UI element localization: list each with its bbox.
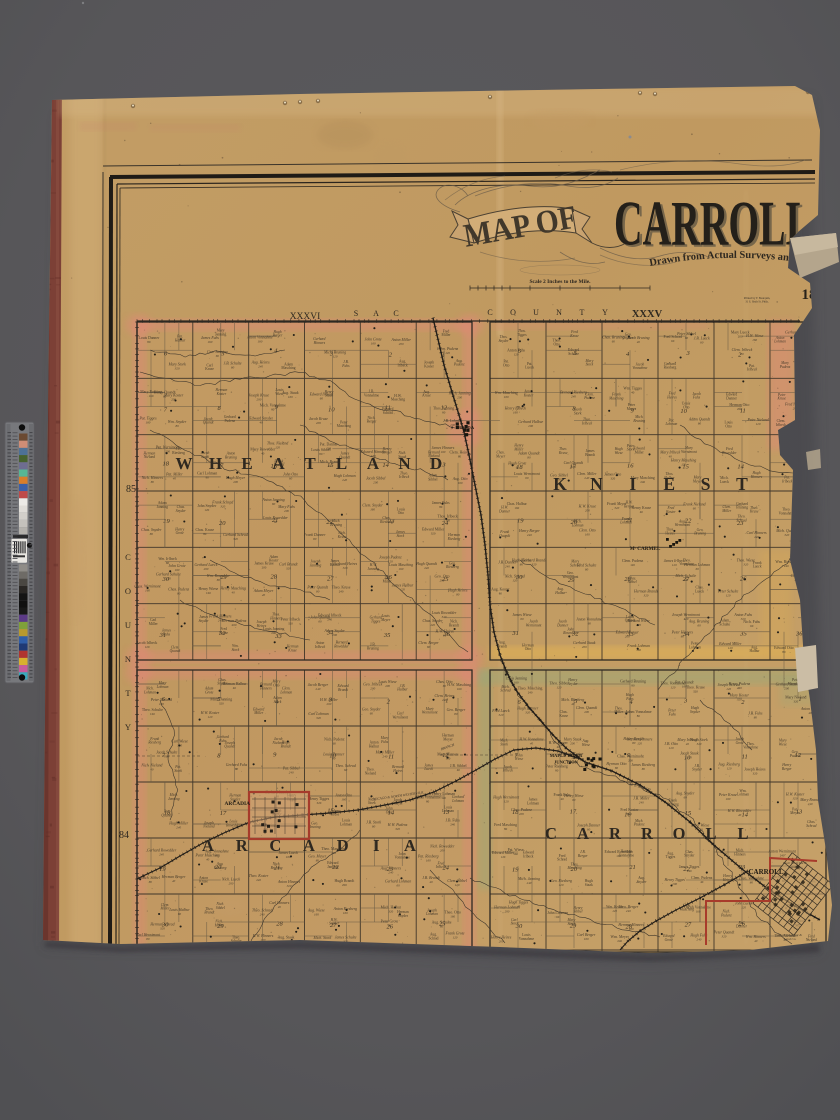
svg-text:240: 240 [289,771,294,775]
svg-text:S: S [354,309,358,318]
svg-text:40: 40 [150,768,154,772]
svg-text:Snyder: Snyder [499,339,510,343]
svg-text:200: 200 [370,687,375,691]
svg-text:Brandt: Brandt [449,623,459,627]
svg-text:200: 200 [284,509,289,513]
svg-text:H: H [209,454,222,473]
svg-text:Kruse: Kruse [205,367,214,371]
svg-text:3: 3 [685,350,690,357]
svg-text:60: 60 [520,617,524,621]
svg-text:40: 40 [686,742,690,746]
svg-text:Snyder: Snyder [199,619,210,623]
svg-text:XXXV: XXXV [632,309,663,320]
svg-text:Janning: Janning [310,564,322,568]
svg-text:Wernimont: Wernimont [681,450,698,454]
svg-text:Riesberg: Riesberg [147,741,161,745]
svg-text:60: 60 [318,620,322,624]
svg-text:60: 60 [328,464,332,468]
svg-text:320: 320 [219,702,224,706]
svg-text:160: 160 [616,854,621,858]
svg-text:160: 160 [726,797,731,801]
svg-text:320: 320 [442,615,447,619]
svg-text:Otto: Otto [554,343,561,347]
svg-text:200: 200 [628,759,633,763]
svg-text:Lueck: Lueck [525,366,534,370]
svg-text:320: 320 [343,566,348,570]
svg-text:240: 240 [640,480,645,484]
svg-text:Miller: Miller [253,711,264,715]
svg-text:320: 320 [793,797,798,801]
svg-text:T: T [580,308,585,317]
svg-text:Scale 2 Inches to the Mile.: Scale 2 Inches to the Mile. [529,279,591,285]
svg-text:Miller: Miller [442,333,452,337]
svg-text:Otto: Otto [525,647,532,651]
svg-text:Quandt: Quandt [224,745,236,749]
svg-text:Bruning: Bruning [271,866,283,870]
svg-text:14: 14 [737,464,744,471]
svg-text:Lueck: Lueck [695,589,704,593]
svg-text:Irlbeck: Irlbeck [314,645,326,649]
svg-text:80: 80 [231,365,235,369]
svg-text:200: 200 [332,633,337,637]
svg-text:Pudenz: Pudenz [720,914,732,918]
svg-text:160: 160 [232,623,237,627]
svg-text:60: 60 [274,520,278,524]
svg-text:40: 40 [278,905,282,909]
svg-text:Danner: Danner [735,925,748,929]
svg-text:160: 160 [571,465,576,469]
svg-text:80: 80 [637,714,641,718]
svg-text:Heires: Heires [392,769,403,773]
svg-text:Grote: Grote [176,531,185,535]
svg-text:80: 80 [146,937,150,941]
svg-text:Halbur: Halbur [396,688,408,692]
svg-text:200: 200 [528,424,533,428]
svg-text:N: N [125,654,131,664]
svg-text:S: S [701,474,711,494]
svg-text:Lueck: Lueck [423,767,433,771]
svg-text:60: 60 [289,477,293,481]
svg-text:Brandt: Brandt [204,911,215,915]
svg-text:160: 160 [696,910,701,914]
svg-text:Land Co.: Land Co. [783,937,797,941]
svg-text:Sibbel: Sibbel [628,580,637,584]
svg-text:Quandt: Quandt [625,619,636,623]
svg-text:80: 80 [178,912,182,916]
svg-text:Tigges: Tigges [666,855,676,859]
svg-text:60: 60 [693,506,697,510]
svg-text:320: 320 [610,477,615,481]
svg-text:160: 160 [149,394,154,398]
svg-text:160: 160 [371,342,376,346]
svg-text:Stork: Stork [574,411,582,415]
svg-text:Y: Y [125,722,131,732]
svg-text:160: 160 [146,421,151,425]
svg-text:Stork: Stork [586,363,594,367]
svg-text:200: 200 [450,423,455,427]
svg-text:320: 320 [697,742,702,746]
svg-text:C: C [269,836,281,855]
svg-text:80: 80 [754,715,758,719]
svg-text:Bruning: Bruning [309,825,321,829]
svg-text:A: A [202,836,214,855]
svg-text:320: 320 [741,617,746,621]
svg-text:120: 120 [559,883,564,887]
svg-text:Schrad: Schrad [557,858,567,862]
svg-text:Snyder: Snyder [176,509,187,513]
svg-text:Quandt: Quandt [203,421,215,425]
svg-text:Bruning: Bruning [330,523,342,527]
svg-text:Bruning: Bruning [633,419,645,423]
svg-text:Halbur: Halbur [369,744,380,748]
svg-text:320: 320 [793,700,798,704]
svg-text:120: 120 [453,936,458,940]
svg-text:200: 200 [233,480,238,484]
svg-text:60: 60 [684,796,688,800]
svg-text:Berger: Berger [367,420,378,424]
svg-text:E: E [241,454,252,473]
svg-text:Bruning: Bruning [367,646,379,650]
svg-text:200: 200 [784,687,789,691]
svg-text:200: 200 [582,645,587,649]
svg-text:200: 200 [262,566,267,570]
svg-text:120: 120 [726,687,731,691]
svg-text:Nieland: Nieland [272,741,285,745]
svg-text:Otto: Otto [398,511,405,515]
svg-text:Tigges: Tigges [517,333,527,337]
svg-text:120: 120 [728,646,733,650]
svg-text:80: 80 [150,532,154,536]
svg-text:Grote: Grote [736,741,745,745]
svg-text:120: 120 [504,799,509,803]
svg-text:80: 80 [443,634,447,638]
svg-text:Heires: Heires [666,395,677,399]
svg-text:80: 80 [631,684,635,688]
svg-text:Meyer: Meyer [495,454,506,458]
svg-text:160: 160 [258,340,263,344]
svg-text:320: 320 [753,772,758,776]
svg-text:Masching: Masching [337,424,351,428]
svg-text:Grote: Grote [665,938,674,942]
svg-text:Stork: Stork [397,534,405,538]
svg-text:80: 80 [176,424,180,428]
svg-text:O: O [673,824,686,843]
svg-text:160: 160 [752,338,757,342]
svg-text:Kruse: Kruse [558,451,568,455]
svg-text:Fuhs: Fuhs [692,396,701,400]
svg-text:O: O [125,586,131,596]
svg-text:Heires: Heires [665,531,675,535]
svg-text:200: 200 [327,702,332,706]
svg-text:320: 320 [233,537,238,541]
svg-text:80: 80 [147,340,151,344]
svg-text:Janning: Janning [157,505,168,509]
svg-text:160: 160 [457,687,462,691]
svg-text:Otto: Otto [725,424,732,428]
svg-text:Koster: Koster [216,392,227,396]
svg-text:40: 40 [530,741,534,745]
svg-text:BREDA: BREDA [458,425,475,430]
svg-text:85: 85 [126,484,136,495]
svg-text:120: 120 [512,579,517,583]
svg-text:160: 160 [399,567,404,571]
svg-text:Wiese: Wiese [779,742,788,746]
svg-text:Meyer: Meyer [790,811,800,815]
svg-text:160: 160 [288,395,293,399]
svg-text:120: 120 [630,563,635,567]
svg-text:240: 240 [584,476,589,480]
svg-text:240: 240 [571,395,576,399]
svg-text:60: 60 [525,476,529,480]
svg-text:Nieland: Nieland [143,455,156,459]
svg-text:160: 160 [458,481,463,485]
svg-text:200: 200 [342,883,347,887]
svg-text:Masching: Masching [281,366,295,370]
svg-text:320: 320 [644,593,649,597]
svg-text:80: 80 [782,650,786,654]
svg-text:Pudenz: Pudenz [583,396,595,400]
svg-text:Koster: Koster [523,394,534,398]
svg-text:ARCADIA: ARCADIA [225,801,251,807]
svg-text:Rowedder: Rowedder [562,631,578,635]
svg-text:80: 80 [504,827,508,831]
svg-text:60: 60 [698,624,702,628]
svg-text:R: R [609,824,622,843]
svg-text:160: 160 [504,395,509,399]
svg-text:Irlbeck: Irlbeck [581,421,593,425]
svg-text:80: 80 [456,592,460,596]
svg-text:R: R [641,824,654,843]
svg-text:160: 160 [513,411,518,415]
svg-text:Irlbeck: Irlbeck [746,368,758,372]
svg-text:120: 120 [204,508,209,512]
svg-text:240: 240 [808,802,813,806]
svg-text:240: 240 [388,871,393,875]
svg-text:160: 160 [584,937,589,941]
svg-text:Wiese: Wiese [615,451,624,455]
svg-text:A: A [303,836,315,855]
svg-text:Halbur: Halbur [750,649,761,653]
svg-text:200: 200 [499,939,504,943]
svg-text:320: 320 [737,697,742,701]
svg-text:240: 240 [754,535,759,539]
svg-text:Stork: Stork [568,922,576,926]
svg-text:120: 120 [430,623,435,627]
svg-text:120: 120 [669,746,674,750]
svg-text:Sibbel: Sibbel [574,910,583,914]
svg-text:80: 80 [442,411,446,415]
svg-text:Bruning: Bruning [736,506,748,510]
svg-text:N: N [398,454,411,473]
svg-text:240: 240 [383,754,388,758]
svg-text:60: 60 [344,768,348,772]
svg-text:80: 80 [632,741,636,745]
svg-text:Lohman: Lohman [279,691,292,695]
svg-text:320: 320 [614,506,619,510]
svg-text:80: 80 [372,825,376,829]
svg-text:Kruse: Kruse [219,631,228,635]
svg-text:A: A [577,824,589,843]
svg-text:31 S. Sixth St. Phila.: 31 S. Sixth St. Phila. [745,301,769,304]
svg-text:40: 40 [173,477,177,481]
svg-text:Rowedder: Rowedder [333,644,349,648]
svg-text:N: N [590,474,603,494]
svg-text:80: 80 [685,336,689,340]
svg-text:80: 80 [750,880,754,884]
svg-text:Stork: Stork [627,448,635,452]
svg-text:160: 160 [164,755,169,759]
svg-text:320: 320 [288,621,293,625]
svg-text:40: 40 [640,510,644,514]
svg-text:120: 120 [166,576,171,580]
svg-text:Berger: Berger [578,854,588,858]
svg-text:80: 80 [332,756,336,760]
svg-text:80: 80 [740,352,744,356]
svg-text:O: O [510,308,516,317]
svg-text:Schrad: Schrad [806,824,816,828]
svg-text:Lohman: Lohman [340,822,352,826]
svg-text:320: 320 [784,533,789,537]
svg-text:Koster: Koster [268,559,279,563]
svg-text:120: 120 [501,855,506,859]
svg-text:Pudenz: Pudenz [453,363,465,367]
svg-text:Lohman: Lohman [665,422,678,426]
svg-text:Schulte: Schulte [719,622,730,626]
svg-text:60: 60 [572,798,576,802]
svg-text:320: 320 [722,935,727,939]
svg-text:80: 80 [427,645,431,649]
svg-text:18: 18 [162,460,169,467]
svg-text:200: 200 [457,396,462,400]
svg-text:27: 27 [685,922,692,929]
svg-text:320: 320 [160,927,165,931]
svg-text:200: 200 [316,421,321,425]
svg-text:240: 240 [617,939,622,943]
svg-text:160: 160 [450,914,455,918]
svg-text:200: 200 [440,848,445,852]
svg-text:Mᶜ CARMEL: Mᶜ CARMEL [630,546,661,552]
svg-text:Wiese: Wiese [582,743,591,747]
svg-text:120: 120 [637,742,642,746]
svg-text:60: 60 [333,742,337,746]
svg-text:T: T [304,454,316,473]
svg-text:80: 80 [642,767,646,771]
svg-text:Vonnahme: Vonnahme [632,366,647,370]
svg-text:Otto: Otto [683,406,690,410]
svg-text:200: 200 [584,710,589,714]
svg-text:A: A [373,309,379,318]
svg-text:160: 160 [514,506,519,510]
svg-text:Fuhs: Fuhs [625,697,634,701]
svg-text:Berger: Berger [624,505,634,509]
svg-text:60: 60 [163,395,167,399]
svg-text:Snyder: Snyder [637,880,648,884]
svg-text:Nieland: Nieland [202,825,215,829]
svg-text:320: 320 [395,827,400,831]
svg-text:Kruse: Kruse [421,394,431,398]
svg-text:Janning: Janning [327,865,338,869]
svg-text:Riesberg: Riesberg [445,565,459,569]
svg-text:40: 40 [232,590,236,594]
svg-text:Hinners: Hinners [313,341,326,345]
svg-text:120: 120 [756,422,761,426]
svg-text:Halbur: Halbur [330,563,341,567]
svg-text:Riesberg: Riesberg [447,537,461,541]
svg-text:Berger: Berger [782,767,792,771]
svg-text:120: 120 [388,560,393,564]
svg-text:120: 120 [445,351,450,355]
svg-text:80: 80 [527,456,531,460]
svg-text:60: 60 [397,884,401,888]
svg-text:120: 120 [208,715,213,719]
svg-text:240: 240 [256,878,261,882]
svg-text:Berger: Berger [273,334,283,338]
svg-text:320: 320 [525,710,530,714]
svg-text:320: 320 [316,716,321,720]
svg-text:T: T [125,688,131,698]
svg-text:80: 80 [217,578,221,582]
svg-text:160: 160 [341,798,346,802]
svg-text:A: A [367,454,380,473]
svg-text:Stork: Stork [368,801,376,805]
svg-text:200: 200 [585,508,590,512]
svg-text:80: 80 [698,422,702,426]
svg-text:40: 40 [233,686,237,690]
svg-text:240: 240 [527,533,532,537]
svg-text:Irlbeck: Irlbeck [523,854,533,858]
svg-text:240: 240 [626,909,631,913]
svg-text:240: 240 [260,912,265,916]
svg-text:Wernimont: Wernimont [422,711,439,715]
svg-text:80: 80 [681,634,685,638]
svg-text:200: 200 [257,398,262,402]
svg-text:120: 120 [400,588,405,592]
svg-text:200: 200 [570,742,575,746]
svg-text:Lohman: Lohman [689,645,701,649]
svg-text:240: 240 [442,698,447,702]
svg-text:L: L [336,454,347,473]
svg-text:60: 60 [556,915,560,919]
svg-text:Meyer: Meyer [443,737,453,741]
svg-text:16: 16 [627,462,634,469]
svg-text:I: I [629,474,636,494]
svg-text:Snyder: Snyder [690,710,701,714]
svg-text:Miller: Miller [635,450,645,454]
svg-text:120: 120 [672,563,677,567]
svg-text:31: 31 [511,630,519,637]
svg-text:Irlbeck: Irlbeck [502,769,514,773]
svg-text:Kruse: Kruse [287,648,297,652]
svg-text:40: 40 [571,702,575,706]
svg-text:200: 200 [399,342,404,346]
svg-text:T: T [736,474,748,494]
svg-text:40: 40 [669,455,673,459]
svg-text:Stork: Stork [500,742,508,746]
svg-text:Irlbeck: Irlbeck [435,865,447,869]
svg-text:40: 40 [206,858,210,862]
svg-text:200: 200 [738,334,743,338]
svg-text:L: L [737,824,748,843]
svg-text:240: 240 [159,853,164,857]
svg-text:Lohman: Lohman [619,521,632,525]
svg-text:240: 240 [505,565,510,569]
svg-text:Lohman: Lohman [527,801,539,805]
svg-text:160: 160 [343,911,348,915]
svg-text:40: 40 [261,452,265,456]
svg-text:200: 200 [440,578,445,582]
svg-text:120: 120 [681,462,686,466]
svg-text:D: D [430,454,442,473]
